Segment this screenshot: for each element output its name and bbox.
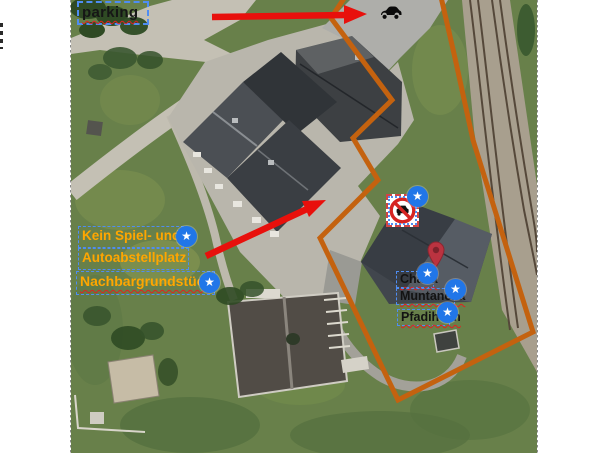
parking-label[interactable]: parking [77,1,149,25]
car-icon[interactable] [379,5,402,20]
neighbor-plot-label-text: Nachbargrundstück [80,273,212,289]
rule-label-line2-text: Autoabstellplatz [82,250,186,265]
star-marker-muntanella[interactable]: ★ [445,279,466,300]
rule-label-line1-text: Kein Spiel- und [82,228,180,243]
star-marker-pfadiheim[interactable]: ★ [437,302,458,323]
rule-label-line1[interactable]: Kein Spiel- und [78,226,184,248]
star-marker-sign[interactable]: ★ [407,186,428,207]
neighbor-plot-label[interactable]: Nachbargrundstück [76,271,215,295]
edge-mark [0,23,3,49]
rule-label-line2[interactable]: Autoabstellplatz [78,248,189,270]
star-marker-rule[interactable]: ★ [176,226,197,247]
star-marker-chasa[interactable]: ★ [417,263,438,284]
annotation-canvas: parking Kein Spiel- und Autoabstellplatz… [0,0,602,453]
star-marker-neighbor[interactable]: ★ [199,272,220,293]
car-glyph [379,5,402,20]
garden-shed [434,330,459,352]
parking-label-text: parking [82,4,138,21]
